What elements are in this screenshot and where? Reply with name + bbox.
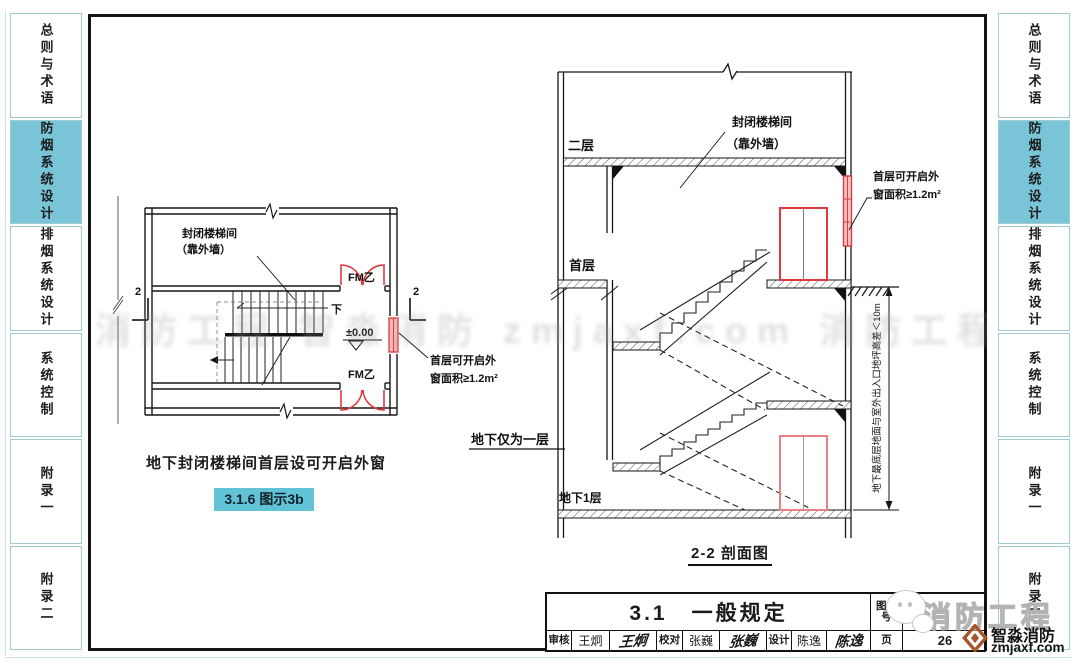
sidebar-tab-smoke-proof-design[interactable]: 防烟系统设计 xyxy=(998,120,1070,225)
section-fire-door-basement xyxy=(780,436,827,510)
tab-label: 总则与术语 xyxy=(37,23,56,108)
sidebar-tab-appendix-1[interactable]: 附录一 xyxy=(998,439,1070,544)
plan-grid-line xyxy=(113,196,123,424)
section-slabs xyxy=(558,158,851,518)
section-title: 3.1 一般规定 xyxy=(547,594,870,630)
right-sidebar: 总则与术语 防烟系统设计 排烟系统设计 系统控制 附录一 附录二 xyxy=(998,13,1070,650)
figure-number-badge: 3.1.6 图示3b xyxy=(214,488,314,511)
tab-label: 附录一 xyxy=(37,466,56,517)
page-number: 26 xyxy=(902,630,987,650)
section-window-leader xyxy=(849,198,872,230)
section-lintel-marks xyxy=(613,166,845,422)
tab-label: 附录一 xyxy=(1025,466,1044,517)
page-edge-left xyxy=(5,10,6,656)
plan-stair xyxy=(210,291,328,385)
reviewer-signature: 王炯 xyxy=(609,630,656,650)
plan-door1-label: FM乙 xyxy=(348,271,375,284)
tab-label: 附录二 xyxy=(37,572,56,623)
sidebar-tab-system-control[interactable]: 系统控制 xyxy=(10,333,82,438)
sidebar-tab-smoke-proof-design[interactable]: 防烟系统设计 xyxy=(10,120,82,225)
tab-label: 排烟系统设计 xyxy=(37,227,56,329)
plan-door2-label: FM乙 xyxy=(348,368,375,381)
plan-elevation-mark xyxy=(343,340,382,350)
tab-label: 防烟系统设计 xyxy=(37,121,56,223)
plan-stairwell-sublabel: （靠外墙） xyxy=(176,242,231,256)
section-caption: 2-2 剖面图 xyxy=(688,542,772,566)
section-floor1-label: 首层 xyxy=(569,258,595,273)
plan-openable-window xyxy=(389,318,398,352)
section-stairs xyxy=(640,250,843,510)
plan-label-leader xyxy=(257,256,295,300)
reviewer-label: 审核 xyxy=(547,630,571,650)
sidebar-tab-appendix-2[interactable]: 附录二 xyxy=(998,546,1070,651)
section-dimension-note: 地下最底层地面与室外出入口地坪高差＜10m xyxy=(871,303,883,493)
page-label: 页 xyxy=(870,630,902,650)
designer-signature: 陈逸 xyxy=(826,630,870,650)
tab-label: 排烟系统设计 xyxy=(1025,227,1044,329)
plan-section-mark-label-left: 2 xyxy=(135,286,141,298)
tab-label: 系统控制 xyxy=(37,351,56,419)
checker-name: 张巍 xyxy=(682,630,719,650)
tab-label: 防烟系统设计 xyxy=(1025,121,1044,223)
plan-stairwell-label: 封闭楼梯间 xyxy=(182,226,237,240)
signature-text: 王炯 xyxy=(618,629,648,651)
signature-text: 张巍 xyxy=(728,629,758,651)
checker-signature: 张巍 xyxy=(719,630,766,650)
title-block: 3.1 一般规定 图集号 1: 审核 王炯 王炯 校对 张巍 张巍 设计 陈逸 … xyxy=(545,592,986,652)
plan-section-marks xyxy=(132,298,426,320)
designer-label: 设计 xyxy=(766,630,791,650)
sidebar-tab-general-terms[interactable]: 总则与术语 xyxy=(998,13,1070,118)
signature-text: 陈逸 xyxy=(833,629,863,651)
left-sidebar: 总则与术语 防烟系统设计 排烟系统设计 系统控制 附录一 附录二 xyxy=(10,13,82,650)
section-view-drawing: 二层 首层 地下1层 封闭楼梯间 （靠外墙） 首层可开启外 窗面积≥1.2m² … xyxy=(455,58,975,568)
section-floor2-label: 二层 xyxy=(568,138,594,153)
plan-section-mark-label-right: 2 xyxy=(413,286,419,298)
section-window-note-2: 窗面积≥1.2m² xyxy=(873,187,941,201)
reviewer-name: 王炯 xyxy=(571,630,609,650)
atlas-number-label: 图集号 xyxy=(870,594,902,630)
atlas-number-value: 1: xyxy=(902,594,987,630)
sidebar-tab-smoke-exhaust-design[interactable]: 排烟系统设计 xyxy=(998,226,1070,331)
sidebar-tab-general-terms[interactable]: 总则与术语 xyxy=(10,13,82,118)
section-window-note-1: 首层可开启外 xyxy=(873,169,939,183)
sidebar-tab-appendix-2[interactable]: 附录二 xyxy=(10,546,82,651)
section-fire-door-first-floor xyxy=(780,208,827,280)
sidebar-tab-system-control[interactable]: 系统控制 xyxy=(998,333,1070,438)
tab-label: 系统控制 xyxy=(1025,351,1044,419)
section-walls xyxy=(558,64,852,538)
sidebar-tab-appendix-1[interactable]: 附录一 xyxy=(10,439,82,544)
section-stairwell-sublabel: （靠外墙） xyxy=(726,136,786,151)
section-basement-note: 地下仅为一层 xyxy=(471,432,549,447)
section-openable-window xyxy=(844,176,852,246)
designer-name: 陈逸 xyxy=(791,630,826,650)
page-edge-bottom xyxy=(5,657,1071,658)
sidebar-tab-smoke-exhaust-design[interactable]: 排烟系统设计 xyxy=(10,226,82,331)
tab-label: 总则与术语 xyxy=(1025,23,1044,108)
plan-window-leader xyxy=(399,333,428,358)
plan-wall-breaks xyxy=(266,204,293,418)
tab-label: 附录二 xyxy=(1025,572,1044,623)
section-basement-label: 地下1层 xyxy=(559,490,602,505)
section-stairwell-label: 封闭楼梯间 xyxy=(732,114,792,129)
checker-label: 校对 xyxy=(656,630,682,650)
plan-elevation-label: ±0.00 xyxy=(346,327,373,339)
plan-caption: 地下封闭楼梯间首层设可开启外窗 xyxy=(136,452,396,473)
plan-down-label: 下 xyxy=(331,303,342,316)
